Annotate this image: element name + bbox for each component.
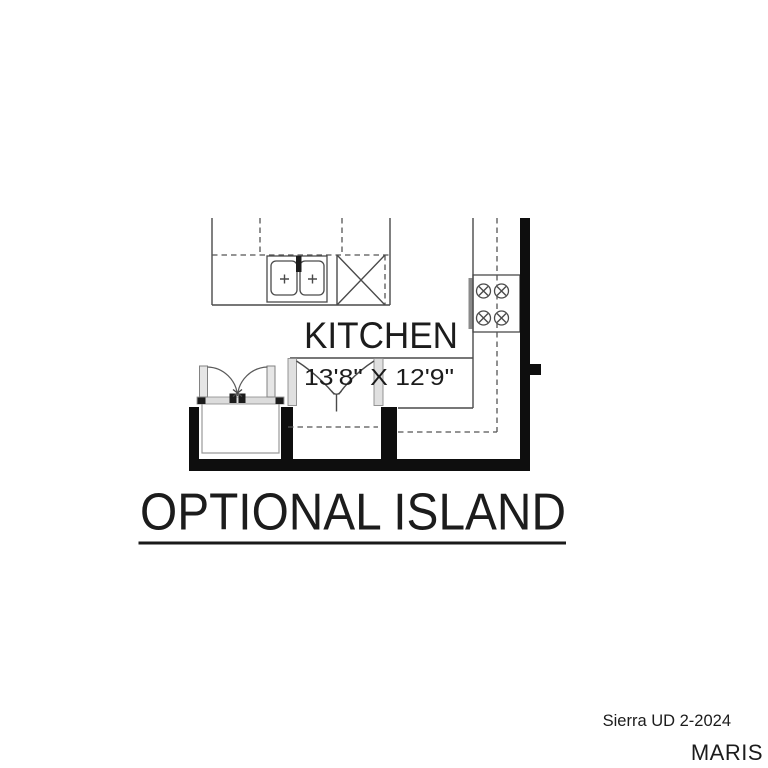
floor-plan-image: KITCHEN 13'8" X 12'9" OPTIONAL ISLAND Si… (0, 0, 768, 768)
caption: OPTIONAL ISLAND (140, 484, 566, 542)
burner-icon (477, 284, 491, 298)
burner-icon (495, 311, 509, 325)
range-icon (469, 275, 521, 332)
burner-icon (477, 311, 491, 325)
faucet-icon (296, 256, 302, 272)
wall-right (520, 218, 530, 471)
door-swing-arc (238, 367, 268, 396)
wall-stub-mid-right (381, 407, 397, 463)
double-doors-icon (197, 366, 284, 404)
door-swing-arc (208, 367, 238, 396)
listing-code: Sierra UD 2-2024 (603, 712, 731, 730)
burner-icon (495, 284, 509, 298)
room-label: KITCHEN (304, 315, 458, 356)
wall-stub-mid-left (281, 407, 293, 463)
upper-cabinets-top (212, 218, 390, 255)
wall-stub-left (189, 407, 199, 463)
room-dimensions: 13'8" X 12'9" (304, 364, 454, 390)
floor-plan-svg: KITCHEN 13'8" X 12'9" OPTIONAL ISLAND Si… (0, 0, 768, 768)
closet-bay (202, 404, 279, 453)
door-leaf-right (267, 366, 275, 397)
kitchen-sink-icon (267, 256, 327, 302)
wall-jog (530, 364, 541, 375)
wall-bottom (189, 459, 530, 471)
brand-watermark: MARIS (691, 740, 763, 765)
dishwasher-icon (337, 255, 385, 305)
door-leaf-left (200, 366, 208, 397)
